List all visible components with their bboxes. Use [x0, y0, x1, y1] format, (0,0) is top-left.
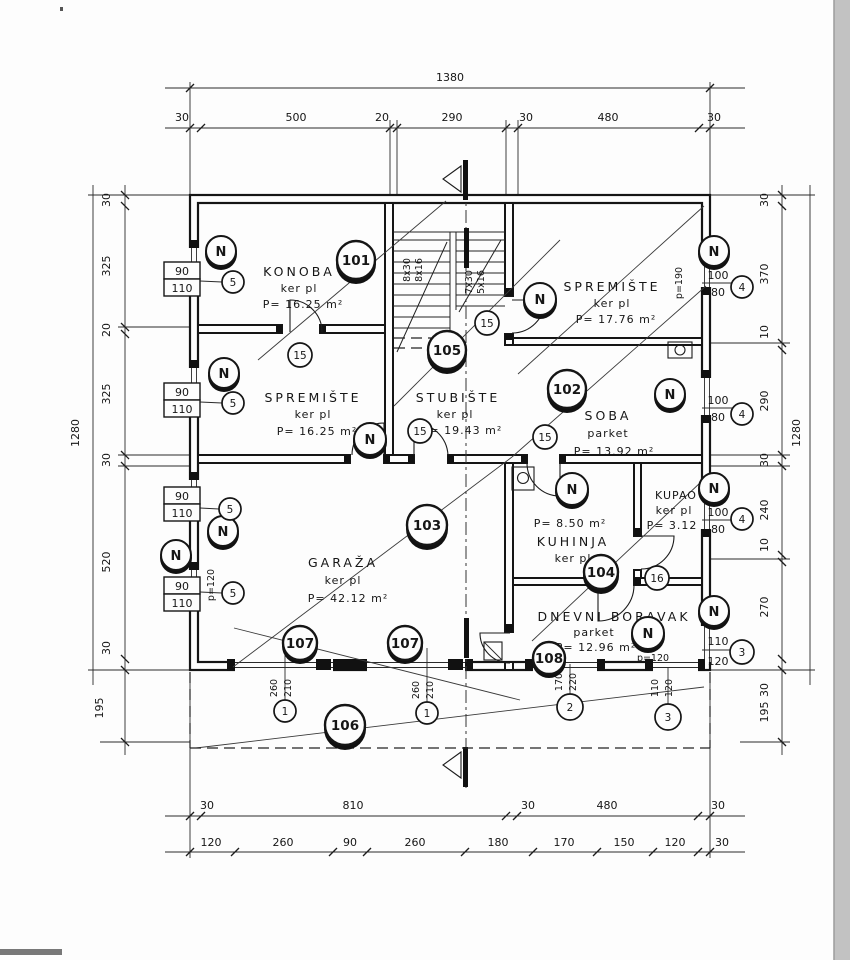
marker-5d: 5	[222, 582, 244, 604]
dim-bi-4: 180	[488, 836, 509, 849]
stair-label-1: 8x30	[402, 258, 413, 282]
win3-h: 120	[664, 679, 675, 697]
svg-text:N: N	[665, 388, 676, 403]
svg-text:5: 5	[230, 277, 237, 289]
marker-1a: 1	[274, 700, 296, 722]
dim-r-extra: 195	[758, 702, 771, 723]
n-marker-kuhinja: N	[555, 473, 589, 509]
n-marker-l3: N	[207, 516, 239, 550]
n-marker-mid: N	[353, 423, 387, 459]
svg-text:107: 107	[391, 636, 419, 652]
winbox-r2-w: 100	[708, 394, 729, 407]
room-stubiste-area: P= 19.43 m²	[422, 424, 502, 437]
room-soba-name: SOBA	[585, 408, 632, 423]
dim-l-1: 325	[100, 256, 113, 277]
dim-bi-7: 120	[665, 836, 686, 849]
dim-top-0: 30	[175, 111, 189, 124]
section-arrow-top	[443, 166, 461, 192]
flue-circle	[518, 473, 529, 484]
svg-text:N: N	[643, 627, 654, 642]
dim-bi-0: 120	[201, 836, 222, 849]
tag-104: 104	[583, 555, 619, 594]
room-garaza: GARAŽA ker pl P= 42.12 m²	[308, 555, 388, 605]
dim-top-1: 500	[286, 111, 307, 124]
win3-w: 110	[650, 679, 661, 697]
marker-15c: 15	[408, 419, 432, 443]
bottom-dimensions: 30 810 30 480 30 120 260 90 260 180 170 …	[165, 672, 745, 858]
svg-text:102: 102	[553, 382, 581, 398]
door1a-h: 210	[283, 679, 294, 697]
svg-text:106: 106	[331, 718, 359, 734]
tag-107a: 107	[282, 626, 318, 664]
room-spremiste2: SPREMIŠTE ker pl P= 16.25 m²	[265, 390, 362, 438]
door1b-w: 260	[411, 681, 422, 699]
marker-5a: 5	[222, 271, 244, 293]
svg-text:2: 2	[567, 702, 574, 714]
svg-text:107: 107	[286, 636, 314, 652]
tag-106: 106	[324, 705, 366, 750]
n-marker-dnevni: N	[631, 617, 665, 653]
marker-5c: 5	[219, 498, 241, 520]
winbox-l4-h: 110	[172, 597, 193, 610]
niche-circle	[675, 345, 685, 355]
winbox-l3-w: 90	[175, 490, 189, 503]
svg-text:N: N	[709, 482, 720, 497]
tag-102: 102	[547, 370, 587, 413]
winbox-r4-w: 110	[708, 635, 729, 648]
room-konoba-finish: ker pl	[281, 282, 318, 295]
n-marker-r1: N	[698, 236, 730, 270]
svg-text:N: N	[219, 367, 230, 382]
dim-top-overall: 1380	[436, 71, 464, 84]
n-marker-l4: N	[160, 540, 192, 574]
section-bar-bottom	[463, 747, 468, 787]
room-konoba-area: P= 16.25 m²	[263, 298, 343, 311]
winbox-l2-h: 110	[172, 403, 193, 416]
room-spremiste2-area: P= 16.25 m²	[277, 425, 357, 438]
dim-bi-1: 260	[273, 836, 294, 849]
dim-bi-6: 150	[614, 836, 635, 849]
svg-text:101: 101	[342, 253, 370, 269]
floor-plan-drawing: 1380 30 500 20 290 30 480 30 30 810 30 4…	[0, 0, 850, 960]
dim-l-5: 520	[100, 552, 113, 573]
marker-4b: 4	[731, 403, 753, 425]
room-soba-finish: parket	[587, 427, 628, 440]
svg-text:16: 16	[650, 573, 664, 585]
svg-text:3: 3	[739, 647, 746, 659]
dim-top-6: 30	[707, 111, 721, 124]
scanned-floor-plan-page: 1380 30 500 20 290 30 480 30 30 810 30 4…	[0, 0, 850, 960]
room-kuhinja-name: KUHINJA	[537, 534, 609, 549]
winbox-l3-h: 110	[172, 507, 193, 520]
dim-top-2: 20	[375, 111, 389, 124]
door1a-w: 260	[269, 679, 280, 697]
svg-text:103: 103	[413, 518, 441, 534]
dim-l-4: 30	[100, 453, 113, 467]
svg-text:N: N	[365, 433, 376, 448]
dim-bo-0: 30	[200, 799, 214, 812]
winbox-r1-w: 100	[708, 269, 729, 282]
garage-center-pier	[333, 659, 367, 671]
svg-text:4: 4	[739, 514, 746, 526]
svg-text:N: N	[709, 605, 720, 620]
svg-text:N: N	[216, 245, 227, 260]
top-dimensions: 1380 30 500 20 290 30 480 30	[165, 71, 745, 195]
door-kupao	[641, 536, 674, 569]
winbox-r2-h: 80	[711, 411, 725, 424]
svg-text:15: 15	[480, 318, 493, 330]
n-marker-r4: N	[698, 596, 730, 630]
marker-5b: 5	[222, 392, 244, 414]
svg-text:15: 15	[413, 426, 426, 438]
apron-outline	[190, 672, 710, 748]
parapet-190: p=190	[674, 267, 685, 299]
dim-bo-2: 30	[521, 799, 535, 812]
n-marker-l2: N	[208, 358, 240, 392]
section-bar-top	[463, 160, 468, 200]
svg-text:15: 15	[538, 432, 551, 444]
marker-3a: 3	[730, 640, 754, 664]
room-stubiste-finish: ker pl	[437, 408, 474, 421]
dim-r-0: 30	[758, 193, 771, 207]
door2-h: 220	[568, 673, 579, 691]
marker-15d: 15	[533, 425, 557, 449]
svg-text:5: 5	[230, 588, 237, 600]
svg-text:108: 108	[535, 651, 563, 667]
dim-l-2: 20	[100, 323, 113, 337]
dim-bi-2: 90	[343, 836, 357, 849]
svg-text:N: N	[709, 245, 720, 260]
tag-101: 101	[336, 241, 376, 284]
svg-text:1: 1	[424, 708, 431, 720]
dim-bi-3: 260	[405, 836, 426, 849]
garage-door-2	[367, 658, 473, 672]
dim-r-6: 10	[758, 538, 771, 552]
dim-l-extra: 195	[93, 698, 106, 719]
stair-label-2: 8x16	[414, 258, 425, 282]
room-spremiste2-finish: ker pl	[295, 408, 332, 421]
svg-text:N: N	[218, 525, 229, 540]
dim-l-0: 30	[100, 193, 113, 207]
tag-103: 103	[406, 505, 448, 550]
dim-r-2: 10	[758, 325, 771, 339]
dim-bi-8: 30	[715, 836, 729, 849]
winbox-r4-h: 120	[708, 655, 729, 668]
dim-r-5: 240	[758, 500, 771, 521]
svg-text:3: 3	[665, 712, 672, 724]
svg-text:4: 4	[739, 282, 746, 294]
dim-r-4: 30	[758, 453, 771, 467]
n-marker-mid-top: N	[523, 283, 557, 319]
room-spremiste1-finish: ker pl	[594, 297, 631, 310]
winbox-left-1: 90110	[164, 262, 200, 296]
dim-bo-4: 30	[711, 799, 725, 812]
marker-2: 2	[557, 694, 583, 720]
dim-r-3: 290	[758, 391, 771, 412]
room-konoba: KONOBA ker pl P= 16.25 m²	[263, 264, 343, 311]
dim-r-8: 30	[758, 683, 771, 697]
svg-text:N: N	[535, 293, 546, 308]
svg-text:15: 15	[293, 350, 306, 362]
marker-15b: 15	[475, 311, 499, 335]
marker-3b: 3	[655, 704, 681, 730]
svg-text:105: 105	[433, 343, 461, 359]
winbox-l1-h: 110	[172, 282, 193, 295]
stair-label-4: 5x16	[476, 270, 487, 294]
svg-text:5: 5	[230, 398, 237, 410]
marker-4c: 4	[731, 508, 753, 530]
room-garaza-area: P= 42.12 m²	[308, 592, 388, 605]
winbox-l4-w: 90	[175, 580, 189, 593]
dim-l-3: 325	[100, 384, 113, 405]
room-spremiste1: SPREMIŠTE ker pl P= 17.76 m²	[564, 279, 661, 326]
room-kupao-area: P= 3.12	[647, 519, 698, 532]
dim-bo-3: 480	[597, 799, 618, 812]
dim-r-1: 370	[758, 264, 771, 285]
room-spremiste1-area: P= 17.76 m²	[576, 313, 656, 326]
marker-15a: 15	[288, 343, 312, 367]
parapet-120-left: p=120	[206, 569, 217, 601]
dim-top-3: 290	[442, 111, 463, 124]
room-stubiste-name: STUBIŠTE	[416, 390, 500, 405]
winbox-r1-h: 80	[711, 286, 725, 299]
winbox-l1-w: 90	[175, 265, 189, 278]
section-arrow-bottom	[443, 752, 461, 778]
tag-107b: 107	[387, 626, 423, 664]
room-kupao-finish: ker pl	[656, 504, 693, 517]
dim-top-4: 30	[519, 111, 533, 124]
room-garaza-finish: ker pl	[325, 574, 362, 587]
n-marker-l1: N	[205, 236, 237, 270]
winbox-left-3: 90110	[164, 487, 200, 521]
tag-105: 105	[427, 331, 467, 374]
dim-bi-5: 170	[554, 836, 575, 849]
dim-left-overall: 1280	[69, 419, 82, 447]
winbox-left-4: 90110	[164, 577, 200, 611]
svg-text:4: 4	[739, 409, 746, 421]
room-konoba-name: KONOBA	[263, 264, 335, 279]
room-spremiste1-name: SPREMIŠTE	[564, 279, 661, 294]
dim-r-7: 270	[758, 597, 771, 618]
winbox-l2-w: 90	[175, 386, 189, 399]
tag-108: 108	[532, 642, 566, 678]
svg-text:N: N	[567, 483, 578, 498]
room-soba-area: P= 13.92 m²	[574, 445, 654, 458]
room-dnevni-finish: parket	[573, 626, 614, 639]
room-dnevni-name: DNEVNI BORAVAK	[537, 609, 690, 624]
room-dnevni-area: P= 12.96 m²	[556, 641, 636, 654]
room-soba: SOBA parket P= 13.92 m²	[574, 408, 654, 458]
svg-text:N: N	[171, 549, 182, 564]
marker-4a: 4	[731, 276, 753, 298]
svg-text:1: 1	[282, 706, 289, 718]
parapet-120-dnevni: p=120	[637, 653, 669, 664]
dim-bo-1: 810	[343, 799, 364, 812]
winbox-left-2: 90110	[164, 383, 200, 417]
n-marker-r3: N	[698, 473, 730, 507]
door1b-h: 210	[425, 681, 436, 699]
n-marker-r2: N	[654, 379, 686, 413]
room-kupao: KUPAO ker pl P= 3.12	[647, 489, 698, 532]
room-kupao-name: KUPAO	[655, 489, 697, 502]
svg-text:5: 5	[227, 504, 234, 516]
dim-right-overall: 1280	[790, 419, 803, 447]
marker-1b: 1	[416, 702, 438, 724]
svg-text:104: 104	[587, 565, 615, 581]
marker-16: 16	[645, 566, 669, 590]
room-garaza-name: GARAŽA	[308, 555, 378, 570]
room-spremiste2-name: SPREMIŠTE	[265, 390, 362, 405]
room-kuhinja-area: P= 8.50 m²	[534, 517, 606, 530]
winbox-r3-h: 80	[711, 523, 725, 536]
dim-l-6: 30	[100, 641, 113, 655]
winbox-r3-w: 100	[708, 506, 729, 519]
dim-top-5: 480	[598, 111, 619, 124]
